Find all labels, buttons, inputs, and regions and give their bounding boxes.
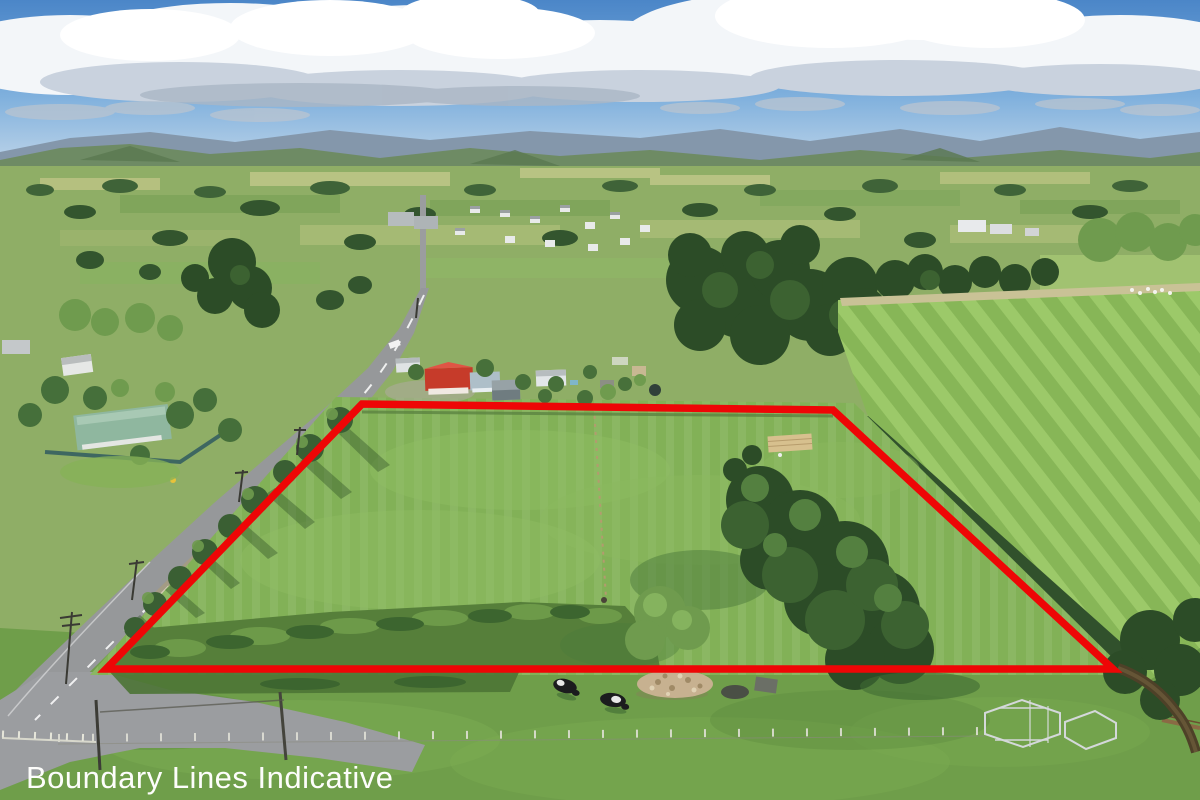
- distant-shed: [958, 220, 986, 232]
- photo-caption: Boundary Lines Indicative: [26, 760, 394, 795]
- timber-stack: [767, 433, 812, 452]
- rock-pile: [636, 670, 713, 700]
- aerial-property-photo: Boundary Lines Indicative: [0, 0, 1200, 800]
